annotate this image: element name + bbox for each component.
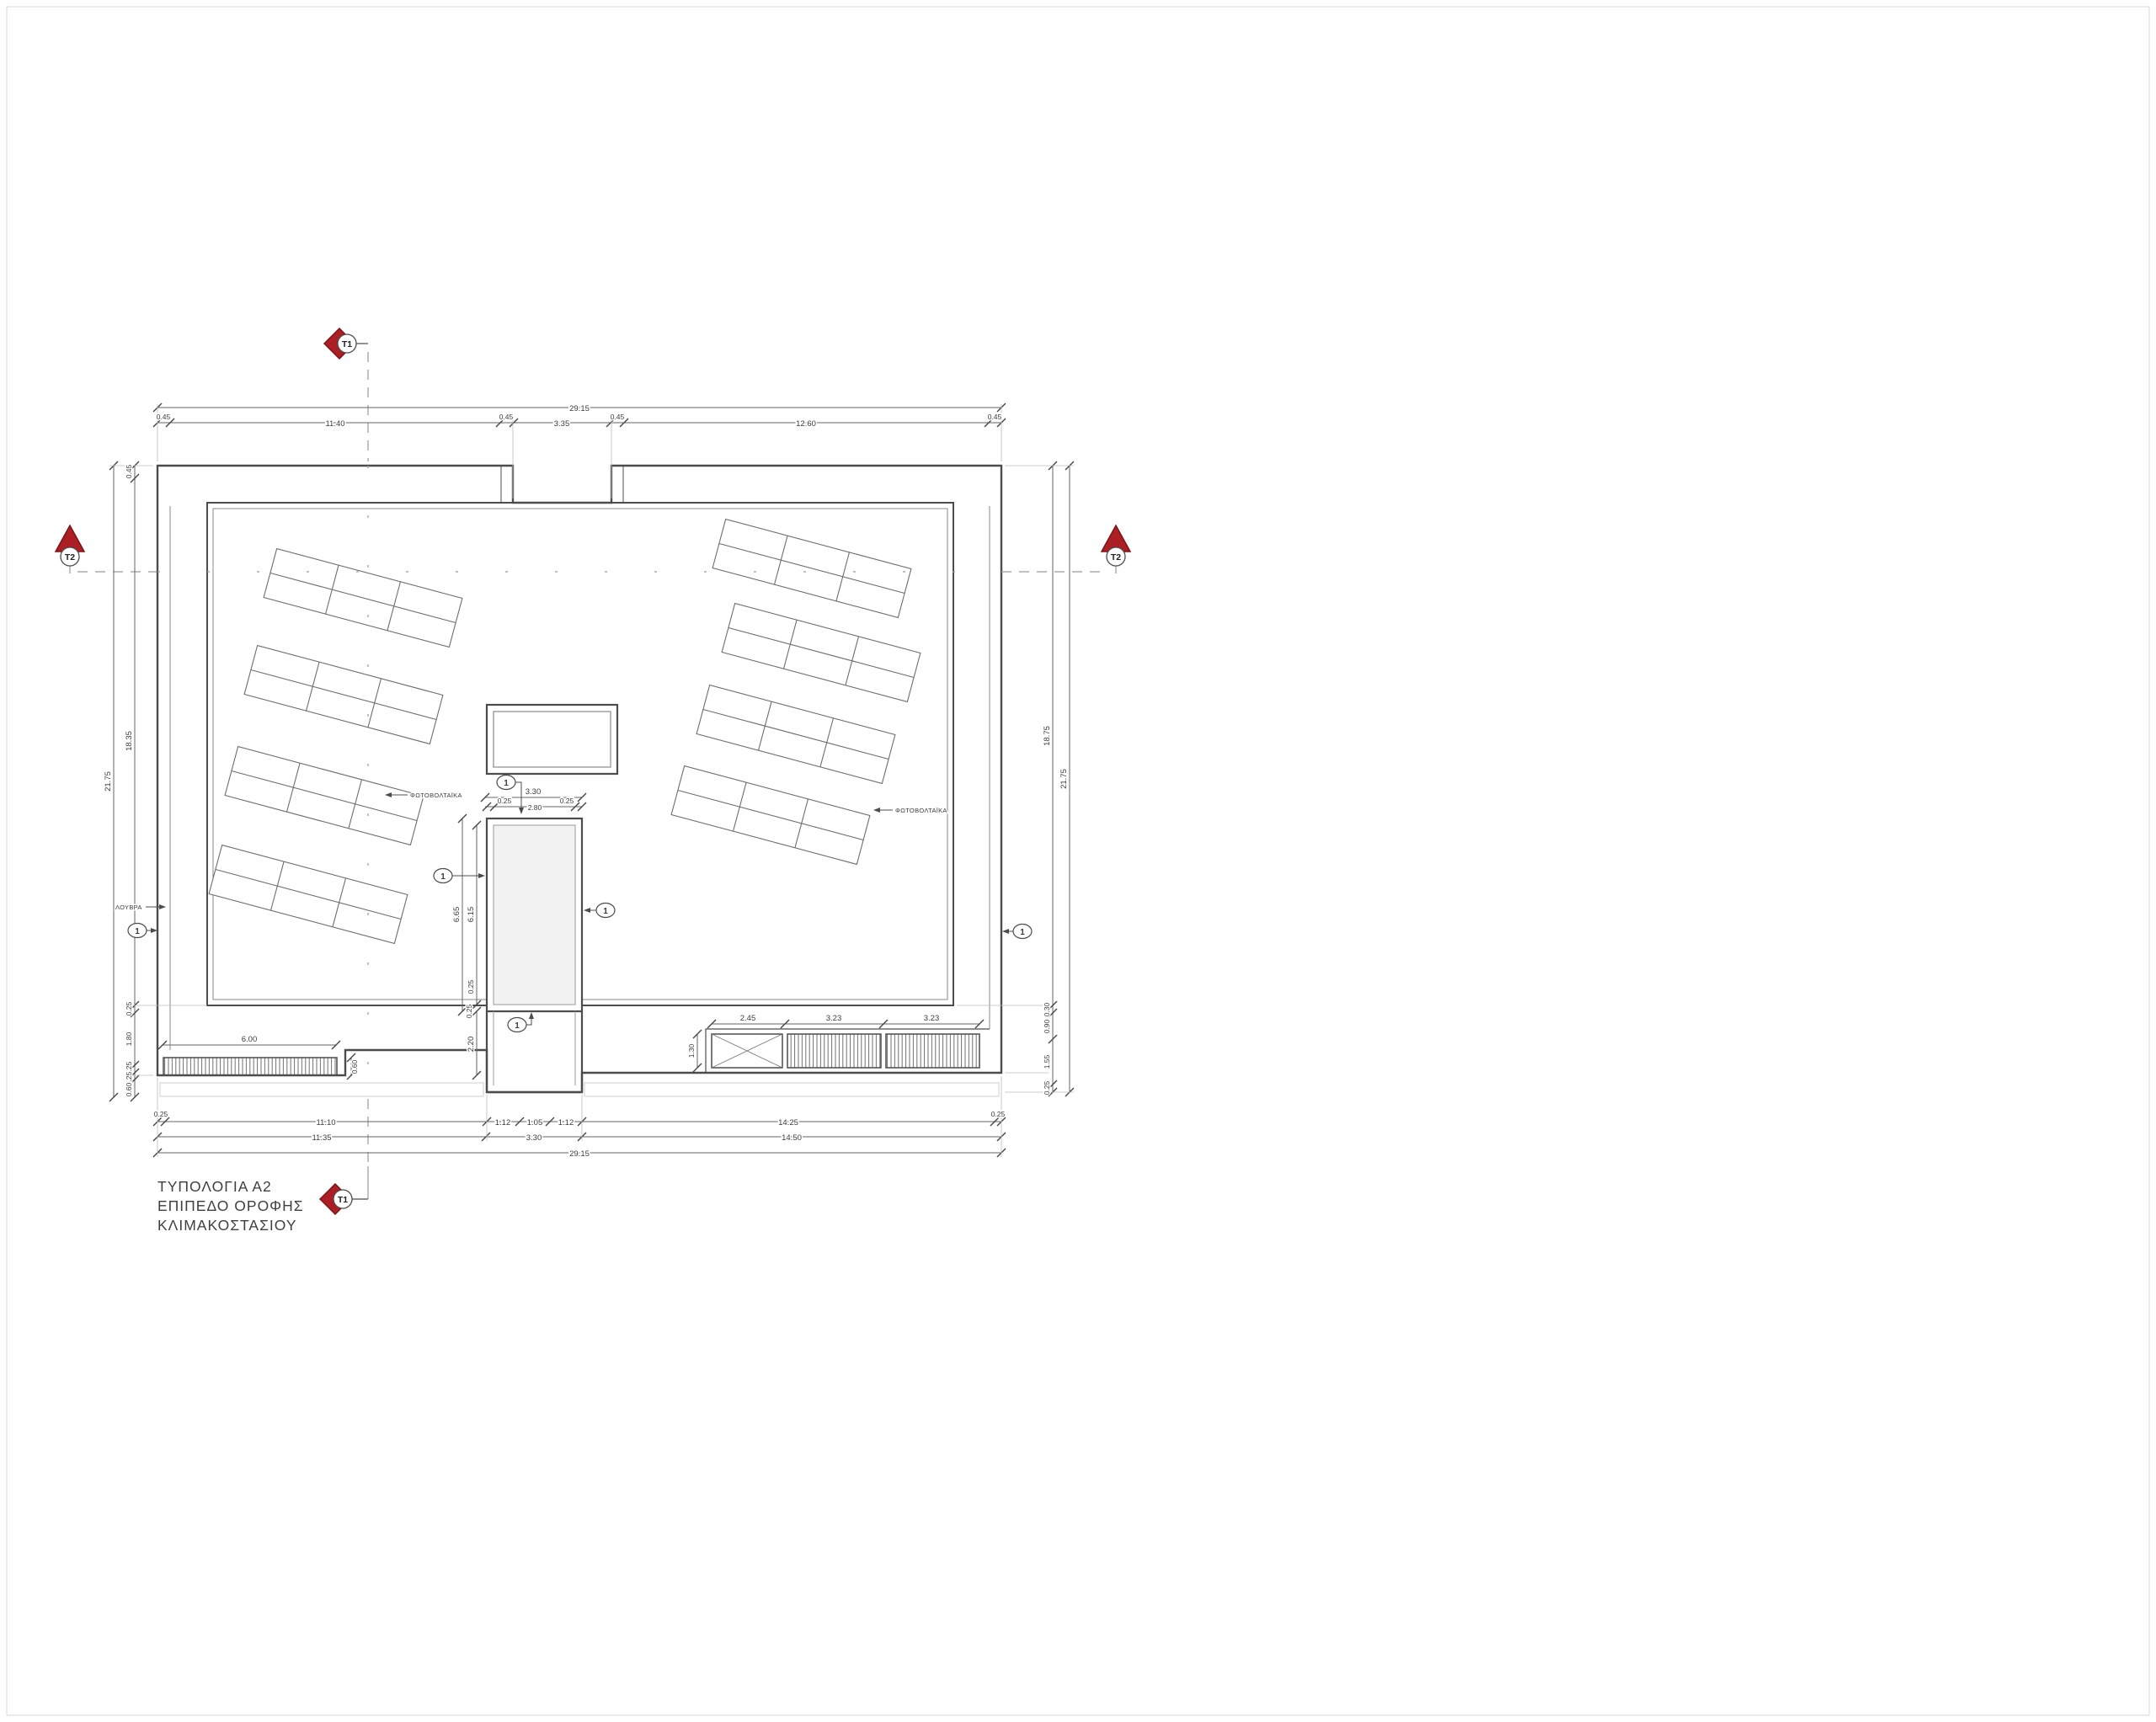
dim-equip-2: 3.23 xyxy=(924,1014,940,1023)
dim-top-3: 3.35 xyxy=(554,419,570,429)
section-marker-right-label: T2 xyxy=(1111,552,1121,562)
dim-bottom1-0: 0.25 xyxy=(154,1110,168,1118)
drawing-title: ΤΥΠΟΛΟΓΙΑ Α2 ΕΠΙΠΕΔΟ ΟΡΟΦΗΣ ΚΛΙΜΑΚΟΣΤΑΣΙ… xyxy=(157,1178,304,1234)
callout-west-wall: 1 xyxy=(128,924,157,938)
callout-east-wall: 1 xyxy=(1002,925,1032,939)
dim-stair-w-2: 0.25 xyxy=(560,797,574,805)
dim-stair-below-1: 0.25 xyxy=(465,1004,473,1018)
title-line-3: ΚΛΙΜΑΚΟΣΤΑΣΙΟΥ xyxy=(157,1217,297,1234)
svg-text:1: 1 xyxy=(1020,928,1025,937)
dim-top-1: 11.40 xyxy=(325,419,344,429)
dim-top-2: 0.45 xyxy=(499,413,514,421)
section-marker-right: T2 xyxy=(1102,525,1130,566)
dim-bottom1-5: 14.25 xyxy=(778,1118,798,1128)
section-marker-bottom: T1 xyxy=(320,1184,368,1214)
dim-right-2: 0.90 xyxy=(1043,1019,1051,1033)
pv-array xyxy=(209,845,408,944)
dim-bottom2-2: 14.50 xyxy=(782,1133,802,1143)
pv-array xyxy=(671,766,870,865)
dim-equip-h: 1.30 xyxy=(687,1043,696,1058)
dim-left-overall: 21.75 xyxy=(104,771,113,792)
arrow-right-icon xyxy=(159,904,166,909)
equipment-zone xyxy=(706,1029,990,1073)
dim-bottom2-1: 3.30 xyxy=(526,1133,542,1143)
dim-right-0: 18.75 xyxy=(1043,726,1052,746)
dim-stair-w-0: 0.25 xyxy=(498,797,512,805)
dim-bottom1-1: 11.10 xyxy=(316,1118,335,1128)
section-marker-top: T1 xyxy=(324,328,368,359)
dim-right-overall: 21.75 xyxy=(1059,769,1069,789)
arrow-left-icon xyxy=(873,808,880,813)
dim-bottom1-4: 1.12 xyxy=(558,1118,574,1128)
stair-shaft xyxy=(487,818,582,1092)
dim-left-1: 18.35 xyxy=(125,731,134,751)
dim-louver-depth: 0.60 xyxy=(350,1059,359,1074)
dim-stair-below-2: 2.20 xyxy=(467,1037,476,1053)
section-marker-left: T2 xyxy=(56,525,84,566)
dim-top-6: 0.45 xyxy=(988,413,1002,421)
pv-array xyxy=(696,685,895,784)
louver-strip xyxy=(163,1058,337,1075)
title-line-1: ΤΥΠΟΛΟΓΙΑ Α2 xyxy=(157,1178,272,1195)
pv-label-right: ΦΩΤΟΒΟΛΤΑΪΚΑ xyxy=(895,807,947,814)
dim-bottom-overall: 29.15 xyxy=(569,1149,590,1159)
dim-top-4: 0.45 xyxy=(611,413,625,421)
dim-right-1: 0.30 xyxy=(1043,1002,1051,1016)
dim-stair-below-0: 0.25 xyxy=(467,979,475,994)
callout-shaft-south: 1 xyxy=(508,1012,534,1032)
dim-stair-h: 6.65 xyxy=(452,907,462,923)
dim-equip-0: 2.45 xyxy=(740,1014,756,1023)
svg-text:1: 1 xyxy=(504,779,509,788)
dim-louver-len: 6.00 xyxy=(242,1035,258,1044)
section-marker-top-label: T1 xyxy=(342,339,352,349)
pv-array xyxy=(264,549,462,648)
pv-array xyxy=(712,520,911,618)
section-marker-bottom-label: T1 xyxy=(338,1195,348,1205)
section-marker-left-label: T2 xyxy=(65,552,75,562)
dim-left-2: 0.25 xyxy=(125,1001,133,1016)
svg-text:1: 1 xyxy=(135,927,140,936)
callout-shaft-east: 1 xyxy=(584,904,615,918)
callout-shaft-west: 1 xyxy=(434,869,485,883)
dim-top-overall: 29.15 xyxy=(569,404,590,413)
pv-array xyxy=(722,604,921,702)
skylight xyxy=(487,705,617,774)
dim-right-4: 0.25 xyxy=(1043,1080,1051,1095)
page-frame xyxy=(7,7,2149,1715)
dim-stair-w-1: 2.80 xyxy=(528,803,542,812)
dim-stair-w: 3.30 xyxy=(526,787,542,797)
dim-bottom2-0: 11.35 xyxy=(312,1133,331,1143)
svg-text:1: 1 xyxy=(515,1021,520,1031)
pv-array xyxy=(225,747,424,845)
dim-right-3: 1.55 xyxy=(1043,1054,1051,1069)
dim-top-0: 0.45 xyxy=(157,413,171,421)
louver-grille-1 xyxy=(787,1034,881,1068)
dim-bottom1-6: 0.25 xyxy=(991,1110,1006,1118)
callout-shaft-north: 1 xyxy=(497,776,524,815)
pv-label-left: ΦΩΤΟΒΟΛΤΑΪΚΑ xyxy=(410,792,462,799)
louvers-label: ΛΟΥΒΡΑ xyxy=(115,904,142,911)
dim-bottom1-2: 1.12 xyxy=(495,1118,511,1128)
dim-left-6: 0.60 xyxy=(125,1082,133,1096)
dim-bottom1-3: 1.05 xyxy=(527,1118,543,1128)
svg-text:1: 1 xyxy=(440,872,446,882)
dim-left-3: 1.80 xyxy=(125,1032,133,1046)
title-line-2: ΕΠΙΠΕΔΟ ΟΡΟΦΗΣ xyxy=(157,1197,304,1214)
drawing-sheet: T1 T1 T2 T2 xyxy=(0,0,2156,1722)
dim-left-0: 0.45 xyxy=(125,464,133,478)
dim-stair-h-inner: 6.15 xyxy=(467,907,476,923)
south-drip-band xyxy=(160,1083,999,1096)
vent-box-crossed xyxy=(712,1034,782,1068)
dim-equip-1: 3.23 xyxy=(826,1014,842,1023)
dim-top-5: 12.60 xyxy=(796,419,816,429)
svg-text:1: 1 xyxy=(603,907,608,916)
pv-array xyxy=(244,646,443,744)
louver-grille-2 xyxy=(886,1034,979,1068)
